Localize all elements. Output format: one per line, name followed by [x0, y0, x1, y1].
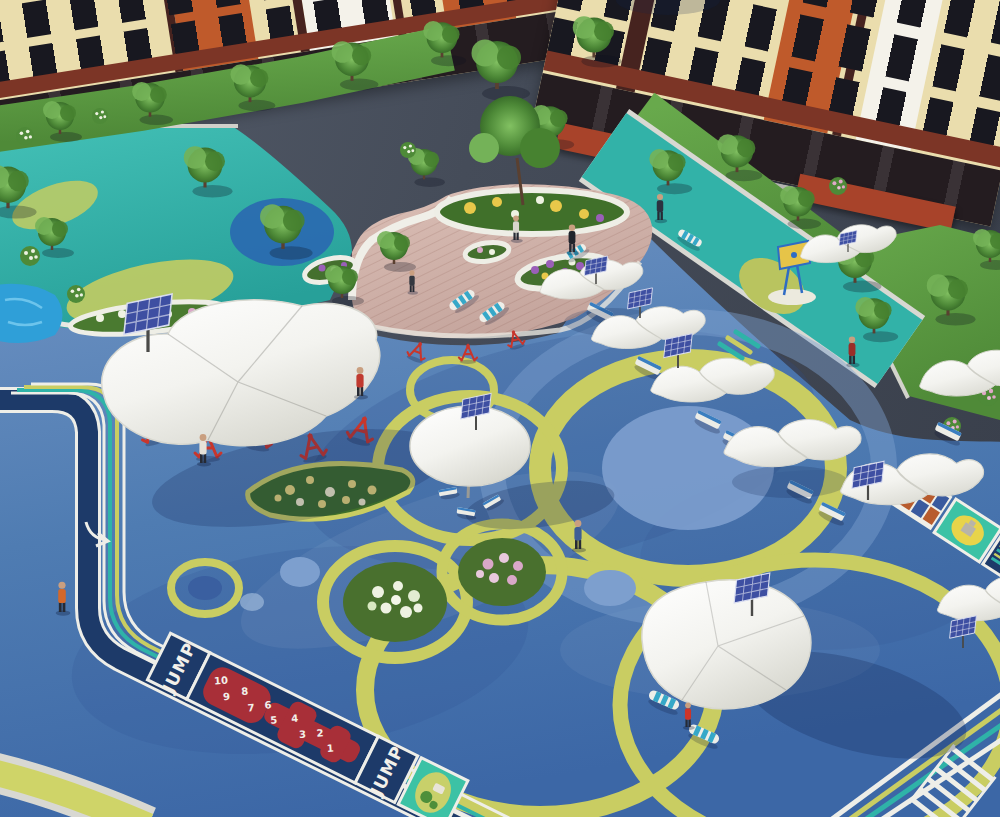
flower-bush [829, 177, 847, 195]
disc-light-blue [584, 570, 636, 606]
hopscotch-number: 10 [214, 675, 229, 687]
canopy-shadow [732, 466, 848, 498]
hopscotch-number: 3 [299, 729, 307, 740]
deck-planter-top [437, 190, 627, 234]
disc-light-blue [602, 406, 774, 530]
tree [573, 16, 622, 67]
disc-light-blue [240, 593, 264, 611]
hopscotch-number: 2 [316, 727, 324, 738]
hopscotch-number: 1 [326, 742, 334, 753]
hopscotch-number: 6 [264, 699, 272, 710]
hopscotch-number: 9 [223, 691, 231, 702]
flower-bush [400, 142, 416, 158]
hopscotch-number: 8 [241, 685, 249, 696]
hopscotch-number: 4 [291, 713, 299, 724]
flower-mound-white [343, 562, 447, 642]
hopscotch-number: 5 [270, 714, 278, 725]
flower-bush [16, 127, 34, 145]
disc-light-blue [280, 557, 320, 587]
flower-bush [67, 285, 85, 303]
playground-render: JUMP 10 9 8 7 6 5 4 3 2 1 JUMP [0, 0, 1000, 817]
disc-dark-blue [188, 576, 222, 600]
flower-bush [92, 108, 108, 124]
hopscotch-number: 7 [247, 702, 255, 713]
canopy-shadow [616, 0, 720, 15]
flower-mound-pink [458, 538, 546, 606]
tree [472, 40, 531, 102]
flower-bush [20, 246, 40, 266]
